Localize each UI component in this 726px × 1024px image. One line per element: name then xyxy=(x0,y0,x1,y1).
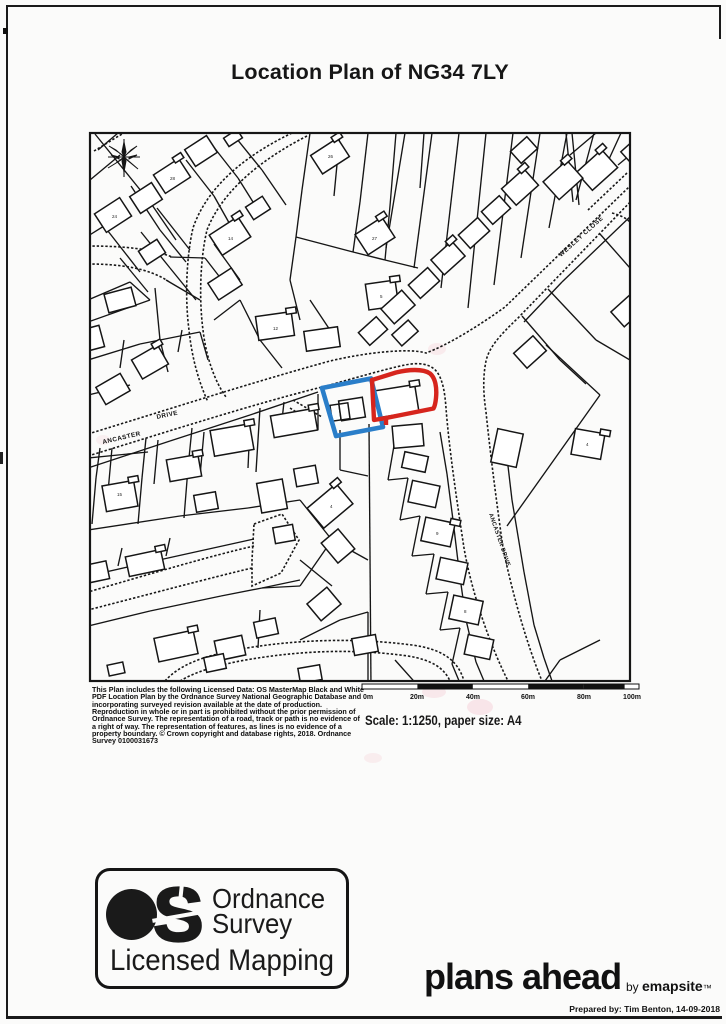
svg-text:ANCASTER: ANCASTER xyxy=(102,430,142,446)
svg-text:60m: 60m xyxy=(521,694,535,701)
svg-text:15: 15 xyxy=(117,492,123,497)
svg-text:14: 14 xyxy=(228,236,234,241)
svg-text:40m: 40m xyxy=(466,694,480,701)
svg-text:26: 26 xyxy=(328,154,334,159)
svg-text:100m: 100m xyxy=(623,694,641,701)
svg-text:28: 28 xyxy=(170,176,176,181)
svg-text:12: 12 xyxy=(273,326,279,331)
svg-text:80m: 80m xyxy=(577,694,591,701)
svg-text:0m: 0m xyxy=(363,694,373,701)
svg-text:27: 27 xyxy=(372,236,378,241)
svg-text:24: 24 xyxy=(112,214,118,219)
svg-text:20m: 20m xyxy=(410,694,424,701)
